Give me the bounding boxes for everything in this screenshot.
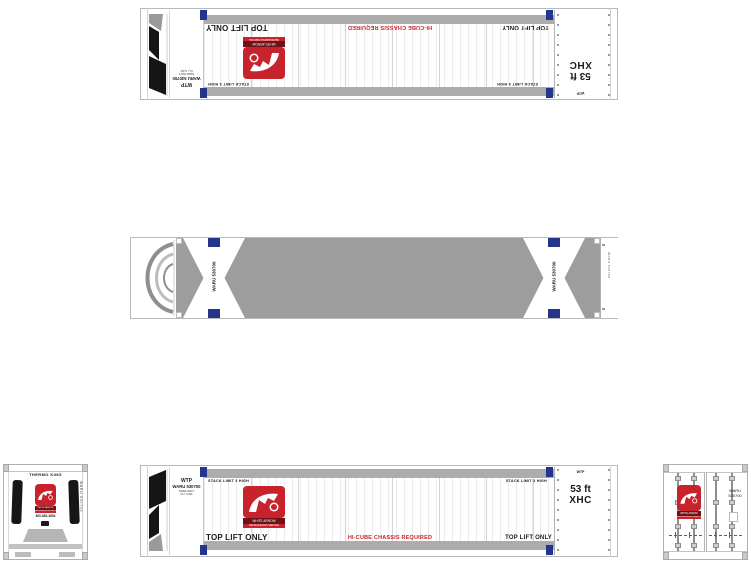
hi-cube-chassis-text: HI-CUBE CHASSIS REQUIRED — [340, 535, 440, 541]
corner-casting — [3, 552, 9, 560]
lock-rod-bracket — [713, 476, 719, 481]
placard — [729, 512, 738, 522]
roof-edge-tick — [602, 308, 605, 310]
logo-subcaption: REFRIGERATED SERVICE — [677, 516, 701, 519]
thermo-king-brand: THERMO KING — [3, 472, 88, 477]
door-end-panel: WTP 53 ft XHC — [554, 467, 612, 555]
hi-cube-chassis-text: HI-CUBE CHASSIS REQUIRED — [340, 24, 440, 30]
stack-limit-text: STACK LIMIT 3 HIGH — [497, 82, 547, 86]
owner-code: WTP — [555, 470, 606, 474]
door-lock-rod — [715, 473, 717, 551]
top-rail — [204, 469, 554, 478]
corner-casting — [742, 464, 748, 472]
lift-point-marker — [208, 238, 220, 247]
end-frame-right — [610, 465, 618, 557]
lift-point-marker — [200, 10, 207, 20]
lock-rod-bracket — [675, 476, 681, 481]
bumper — [23, 529, 68, 542]
lock-rod-bracket — [691, 543, 697, 548]
lock-rod-bracket — [713, 500, 719, 505]
corner-casting — [663, 464, 669, 472]
handle-keeper — [729, 532, 730, 538]
top-lift-only-text: TOP LIFT ONLY — [502, 24, 552, 30]
roof-edge-number: WARU 530700 — [607, 252, 611, 279]
corner-casting — [742, 552, 748, 560]
top-lift-only-text: TOP LIFT ONLY — [206, 23, 268, 32]
lock-rod-bracket — [729, 476, 735, 481]
white-arrow-logo: WHITE ARROW REFRIGERATED SERVICE — [243, 486, 285, 528]
owner-code: WTP — [555, 91, 606, 95]
container-door-end-view: WHITE ARROW REFRIGERATED SERVICE WARU 53… — [663, 464, 748, 560]
stack-limit-text: STACK LIMIT 3 HIGH — [208, 479, 249, 483]
lift-point-marker — [548, 309, 560, 318]
unit-data-text: WTP WARU 530700 TARE WGT CU. CAP. — [170, 478, 203, 497]
bottom-rail — [204, 541, 554, 550]
roof-corner-casting — [176, 312, 182, 318]
corner-casting — [82, 552, 88, 560]
logo-subcaption: REFRIGERATED SERVICE — [35, 510, 56, 513]
door-panel-texts: WTP 53 ft XHC — [555, 59, 606, 95]
logo-subcaption: REFRIGERATED SERVICE — [243, 37, 285, 41]
top-lift-only-text: TOP LIFT ONLY — [502, 535, 552, 541]
handle-keeper — [689, 532, 690, 538]
reefer-machinery-graphic — [147, 12, 169, 98]
length-label: 53 ft — [555, 484, 606, 495]
roof-edge-tick — [602, 244, 605, 246]
lock-rod-bracket — [729, 500, 735, 505]
corner-casting — [3, 464, 9, 472]
white-arrow-icon — [677, 485, 701, 511]
top-rail — [204, 87, 554, 96]
door-gap-line — [706, 473, 707, 551]
handle-keeper — [675, 532, 676, 538]
roof-corner-casting — [176, 238, 182, 244]
white-arrow-logo: WHITE ARROW REFRIGERATED SERVICE — [243, 37, 285, 79]
lock-rod-bracket — [691, 524, 697, 529]
door-handle-bar — [669, 535, 702, 536]
door-container-number: WARU 530700 — [723, 488, 747, 498]
white-arrow-logo: WHITE ARROW REFRIGERATED SERVICE — [35, 484, 56, 513]
lift-point-marker — [546, 545, 553, 555]
lock-rod-bracket — [675, 543, 681, 548]
side-container-number: WARU 530700 — [79, 481, 83, 512]
bottom-rail-line — [664, 551, 747, 552]
number-line2: 530700 — [723, 493, 747, 498]
lift-point-marker — [200, 545, 207, 555]
stack-limit-text: STACK LIMIT 3 HIGH — [208, 82, 249, 86]
lift-point-marker — [546, 10, 553, 20]
door-gap-line — [704, 473, 705, 551]
lock-rod-bracket — [713, 524, 719, 529]
container-number: WARU 530700 — [170, 76, 203, 81]
lock-rod-bracket — [713, 543, 719, 548]
lift-point-marker — [200, 467, 207, 477]
service-phone-number: 800-853-4854 — [3, 514, 88, 518]
owner-code: WTP — [170, 81, 203, 87]
lift-point-marker — [200, 88, 207, 98]
reefer-unit-top-graphic — [131, 238, 176, 318]
lift-point-marker — [548, 238, 560, 247]
unit-data-text: WTP WARU 530700 TARE WGT CU. CAP. — [170, 68, 203, 87]
container-roof-view: WARU 530700 WARU 530700 WARU 530700 — [130, 237, 618, 319]
door-panel-texts: WTP 53 ft XHC — [555, 470, 606, 506]
white-arrow-icon — [35, 484, 56, 506]
lock-rod-bracket — [729, 543, 735, 548]
base-bar — [9, 544, 82, 549]
corner-casting — [663, 552, 669, 560]
cube-line: CU. CAP. — [170, 493, 203, 497]
latch-handle — [41, 521, 49, 526]
door-end-panel: WTP 53 ft XHC — [554, 10, 612, 98]
lock-rod-bracket — [729, 524, 735, 529]
corner-casting — [82, 464, 88, 472]
foot-pad — [15, 552, 31, 557]
roof-container-number: WARU 530700 — [552, 255, 557, 299]
door-handle-bar — [709, 535, 742, 536]
stack-limit-text: STACK LIMIT 3 HIGH — [497, 479, 547, 483]
top-lift-only-text: TOP LIFT ONLY — [206, 533, 268, 542]
handle-keeper — [715, 532, 716, 538]
white-arrow-icon — [243, 486, 285, 518]
white-arrow-logo: WHITE ARROW REFRIGERATED SERVICE — [677, 485, 701, 519]
foot-pad — [59, 552, 75, 557]
unit-data-panel: WTP WARU 530700 TARE WGT CU. CAP. — [169, 10, 204, 98]
lift-point-marker — [208, 309, 220, 318]
container-decal-sheet: WTP WARU 530700 TARE WGT CU. CAP. STACK … — [0, 0, 751, 563]
lock-rod-bracket — [675, 524, 681, 529]
height-code: XHC — [555, 59, 606, 70]
roof-door-end-strip: WARU 530700 — [600, 238, 618, 318]
lock-rod-bracket — [691, 476, 697, 481]
end-frame-right — [610, 8, 618, 100]
cube-line: CU. CAP. — [170, 68, 203, 72]
lift-point-marker — [546, 88, 553, 98]
container-side-view-flipped: WTP WARU 530700 TARE WGT CU. CAP. STACK … — [140, 8, 618, 100]
reefer-front-end-view: THERMO KING WHITE ARROW REFRIGERATED SER… — [3, 464, 88, 560]
roof-container-number: WARU 530700 — [212, 255, 217, 299]
lift-point-marker — [546, 467, 553, 477]
height-code: XHC — [555, 495, 606, 506]
unit-data-panel: WTP WARU 530700 TARE WGT CU. CAP. — [169, 467, 204, 555]
container-side-view: WTP WARU 530700 TARE WGT CU. CAP. STACK … — [140, 465, 618, 557]
white-arrow-icon — [243, 47, 285, 79]
length-label: 53 ft — [555, 70, 606, 81]
reefer-machinery-graphic — [147, 467, 169, 553]
logo-subcaption: REFRIGERATED SERVICE — [243, 524, 285, 528]
